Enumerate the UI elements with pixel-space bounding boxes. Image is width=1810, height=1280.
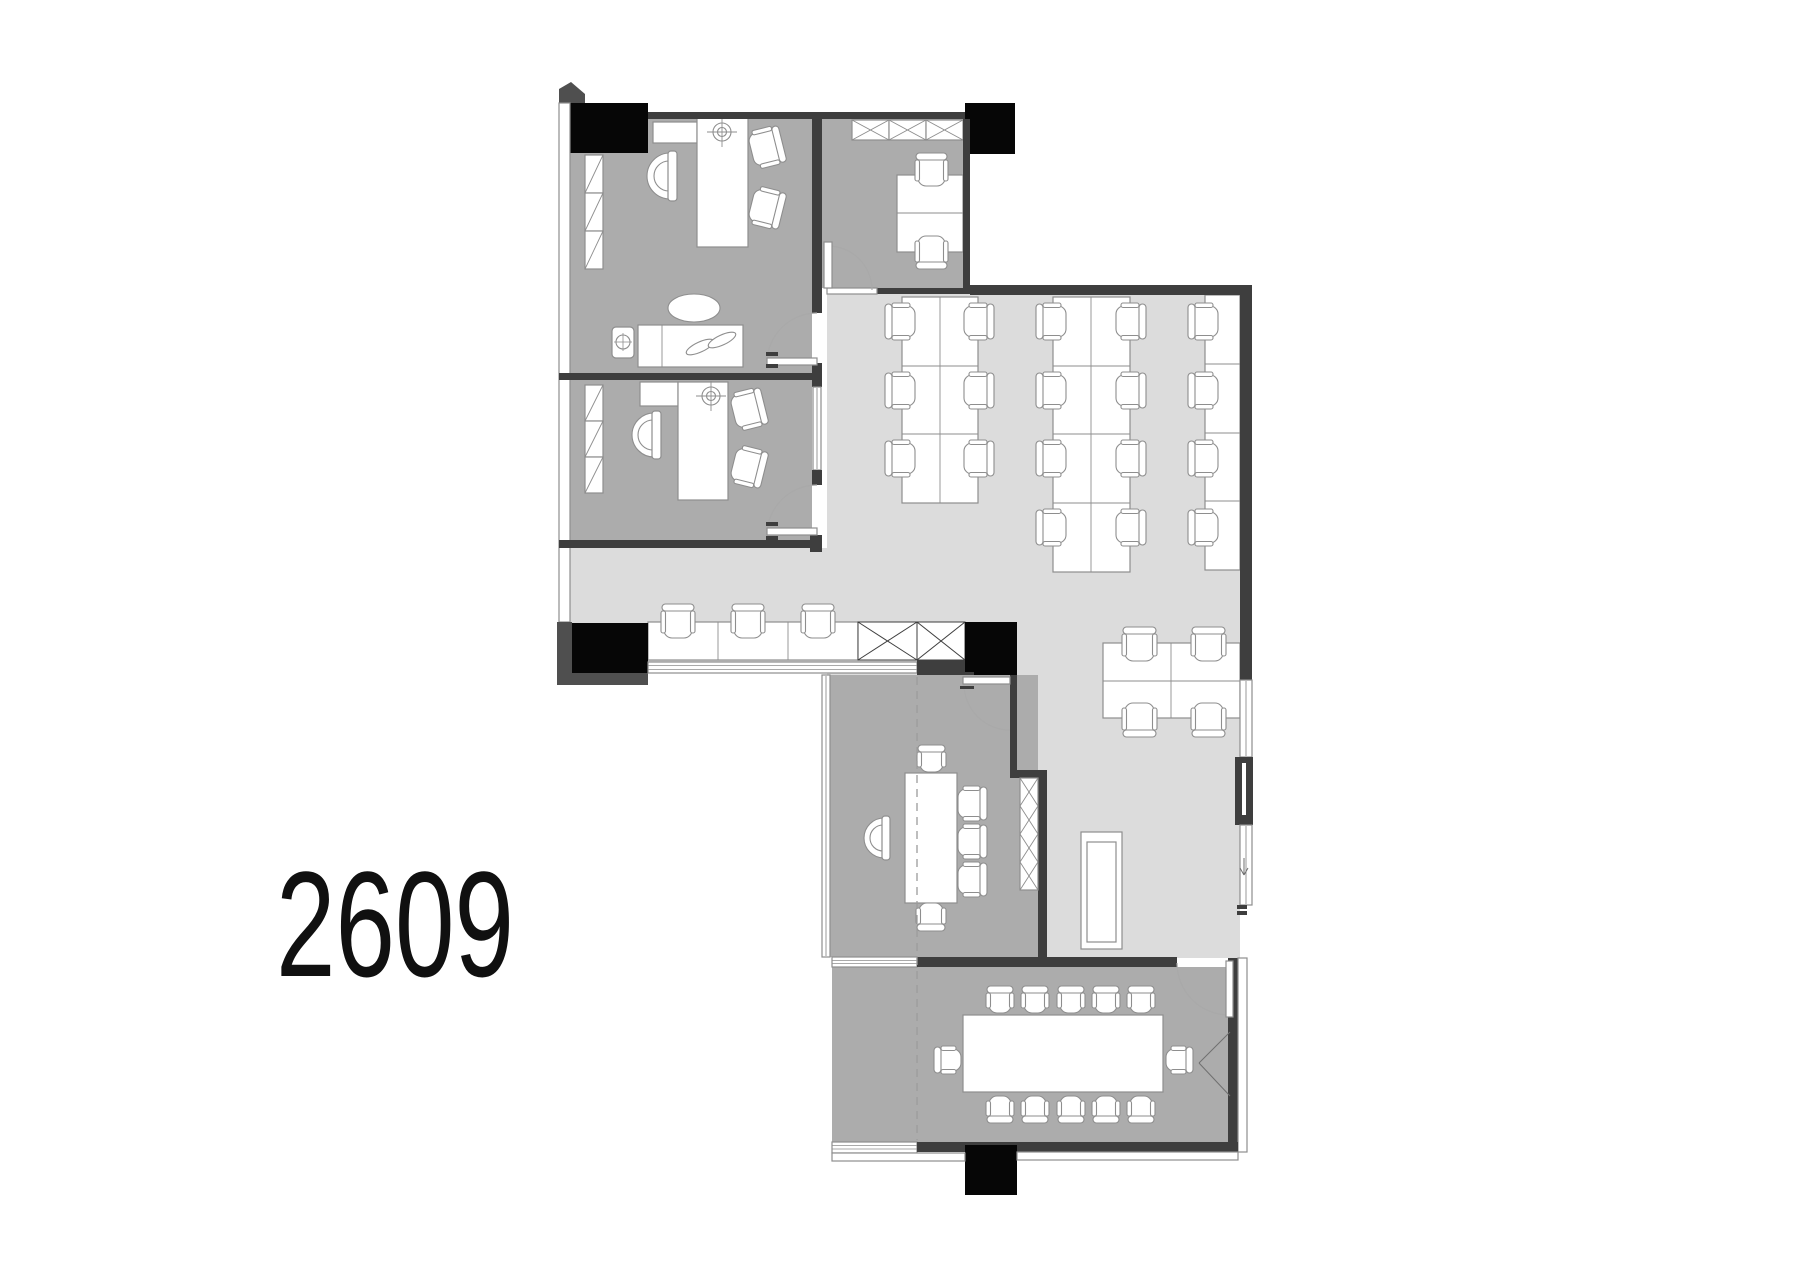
chair-part bbox=[1081, 993, 1086, 1008]
office-chair bbox=[731, 604, 765, 638]
chair-part bbox=[1022, 1116, 1048, 1123]
door-jamb-mark bbox=[1237, 911, 1247, 915]
office-chair bbox=[1116, 372, 1146, 409]
chair-part bbox=[1036, 510, 1043, 545]
chair-part bbox=[1043, 405, 1061, 410]
chair-part bbox=[885, 441, 892, 476]
wall-office1-east bbox=[812, 293, 822, 313]
office-chair bbox=[1116, 303, 1146, 340]
chair-part bbox=[1188, 304, 1195, 339]
chair-part bbox=[1125, 630, 1154, 661]
chair-part bbox=[986, 1101, 991, 1116]
chair-part bbox=[980, 787, 987, 820]
floor-plan-page: 2609 bbox=[0, 0, 1810, 1280]
chair-part bbox=[969, 372, 987, 377]
office-chair bbox=[1122, 627, 1157, 661]
chair-part bbox=[1123, 627, 1156, 634]
chair-part bbox=[1092, 993, 1097, 1008]
chair-part bbox=[1186, 1047, 1193, 1073]
chair-part bbox=[987, 986, 1013, 993]
meeting-table bbox=[905, 773, 957, 903]
chair-part bbox=[1121, 336, 1139, 341]
chair-part bbox=[980, 825, 987, 858]
chair-part bbox=[1043, 542, 1061, 547]
chair-part bbox=[942, 752, 947, 767]
conference-chair bbox=[1021, 986, 1049, 1013]
chair-part bbox=[1045, 993, 1050, 1008]
window-band-south bbox=[648, 662, 917, 673]
wall-meeting-east-a bbox=[1010, 685, 1017, 770]
chair-part bbox=[1222, 634, 1227, 656]
column-block-sw bbox=[572, 623, 648, 673]
chair-part bbox=[1139, 510, 1146, 545]
chair-part bbox=[1036, 304, 1043, 339]
chair-part bbox=[1171, 1046, 1186, 1051]
chair-part bbox=[1021, 1101, 1026, 1116]
chair-part bbox=[1127, 1101, 1132, 1116]
chair-part bbox=[1022, 986, 1048, 993]
chair-part bbox=[916, 262, 947, 269]
chair-part bbox=[1195, 372, 1213, 377]
chair-part bbox=[941, 1046, 956, 1051]
chair-part bbox=[885, 304, 892, 339]
chair-part bbox=[963, 855, 980, 860]
chair-part bbox=[664, 607, 692, 638]
chair-part bbox=[1021, 993, 1026, 1008]
chair-part bbox=[1194, 630, 1223, 661]
wall-meeting-jog bbox=[1010, 770, 1047, 778]
office-chair bbox=[958, 786, 987, 821]
chair-part bbox=[1092, 1101, 1097, 1116]
chair-part bbox=[1194, 703, 1223, 734]
chair-part bbox=[1043, 336, 1061, 341]
floor-plan: 2609 bbox=[0, 0, 1810, 1280]
chair-part bbox=[1192, 627, 1225, 634]
chair-part bbox=[1121, 509, 1139, 514]
chair-part bbox=[969, 440, 987, 445]
chair-part bbox=[944, 160, 949, 181]
open-office-floor bbox=[827, 293, 1240, 675]
chair-part bbox=[761, 611, 766, 633]
chair-part bbox=[963, 824, 980, 829]
chair-part bbox=[1222, 708, 1227, 730]
chair-part bbox=[1043, 440, 1061, 445]
chair-part bbox=[963, 817, 980, 822]
wall-cabinet bbox=[653, 122, 697, 143]
chair-part bbox=[915, 160, 920, 181]
door-jamb bbox=[1010, 675, 1017, 685]
chair-part bbox=[916, 153, 947, 160]
wall-small-office-south bbox=[877, 288, 970, 294]
office-chair bbox=[885, 372, 915, 409]
office-chair bbox=[1116, 440, 1146, 477]
door-jamb-mark bbox=[1237, 905, 1247, 909]
wall-office1-south bbox=[559, 373, 822, 380]
chair-part bbox=[1191, 634, 1196, 656]
conference-chair bbox=[1092, 1096, 1120, 1123]
office-chair bbox=[801, 604, 835, 638]
door-leaf bbox=[824, 242, 832, 288]
office-chair bbox=[964, 303, 994, 340]
wall-south-foot bbox=[557, 673, 648, 685]
chair-part bbox=[1153, 634, 1158, 656]
chair-part bbox=[1093, 986, 1119, 993]
chair-part bbox=[1121, 440, 1139, 445]
conference-chair bbox=[1021, 1096, 1049, 1123]
conference-chair bbox=[1092, 986, 1120, 1013]
chair-part bbox=[969, 473, 987, 478]
chair-part bbox=[963, 862, 980, 867]
office-chair bbox=[964, 440, 994, 477]
chair-part bbox=[1057, 993, 1062, 1008]
door-leaf bbox=[767, 528, 817, 535]
conference-chair bbox=[986, 986, 1014, 1013]
door-leaf bbox=[963, 677, 1010, 684]
chair-part bbox=[1093, 1116, 1119, 1123]
chair-part bbox=[1188, 441, 1195, 476]
office-chair bbox=[1036, 372, 1066, 409]
chair-part bbox=[892, 372, 910, 377]
chair-part bbox=[691, 611, 696, 633]
chair-part bbox=[980, 863, 987, 896]
chair-part bbox=[1139, 441, 1146, 476]
chair-part bbox=[963, 893, 980, 898]
window-band-meeting-south bbox=[832, 957, 917, 967]
chair-part bbox=[1151, 1101, 1156, 1116]
chair-part bbox=[1151, 993, 1156, 1008]
chair-part bbox=[987, 441, 994, 476]
office-chair bbox=[661, 604, 695, 638]
door-threshold bbox=[827, 288, 877, 294]
chair-part bbox=[1058, 986, 1084, 993]
conference-chair bbox=[1057, 1096, 1085, 1123]
oval-table bbox=[668, 294, 720, 322]
chair-part bbox=[969, 336, 987, 341]
chair-part bbox=[1043, 473, 1061, 478]
wall-top bbox=[648, 112, 1015, 119]
chair-part bbox=[969, 303, 987, 308]
chair-part bbox=[934, 1047, 941, 1073]
office-chair bbox=[1188, 509, 1218, 546]
wall-stub bbox=[812, 470, 822, 485]
chair-part bbox=[892, 473, 910, 478]
chair-part bbox=[1043, 303, 1061, 308]
chair-part bbox=[1043, 509, 1061, 514]
conference-chair bbox=[1166, 1046, 1193, 1074]
chair-part bbox=[1010, 1101, 1015, 1116]
column-block-south bbox=[965, 1145, 1017, 1195]
chair-part bbox=[941, 1070, 956, 1075]
door-leaf bbox=[1226, 961, 1233, 1017]
office-chair bbox=[1122, 703, 1157, 737]
wall-slot bbox=[1242, 763, 1246, 815]
chair-part bbox=[802, 604, 834, 611]
chair-part bbox=[1195, 405, 1213, 410]
chair-part bbox=[1045, 1101, 1050, 1116]
office-chair bbox=[885, 303, 915, 340]
chair-part bbox=[1043, 372, 1061, 377]
chair-part bbox=[1171, 1070, 1186, 1075]
office-chair bbox=[1191, 627, 1226, 661]
column-block-ne bbox=[965, 103, 1015, 154]
chair-part bbox=[917, 924, 945, 931]
office-chair bbox=[958, 824, 987, 859]
conference-chair bbox=[1127, 1096, 1155, 1123]
chair-part bbox=[1116, 993, 1121, 1008]
chair-part bbox=[986, 993, 991, 1008]
chair-part bbox=[1195, 336, 1213, 341]
chair-part bbox=[1195, 303, 1213, 308]
chair-part bbox=[1010, 993, 1015, 1008]
wall-meeting-east-b bbox=[1038, 778, 1047, 958]
chair-part bbox=[987, 1116, 1013, 1123]
wall-east-upper bbox=[1240, 285, 1252, 680]
conference-table bbox=[963, 1015, 1163, 1092]
wall-conference-east-face bbox=[1238, 958, 1247, 1152]
chair-part bbox=[732, 604, 764, 611]
chair-part bbox=[661, 611, 666, 633]
chair-part bbox=[1188, 510, 1195, 545]
office-chair bbox=[1036, 509, 1066, 546]
chair-part bbox=[1191, 708, 1196, 730]
chair-part bbox=[1116, 1101, 1121, 1116]
sill-south-left bbox=[832, 1153, 965, 1161]
chair-part bbox=[1195, 440, 1213, 445]
chair-part bbox=[987, 304, 994, 339]
conference-chair bbox=[934, 1046, 961, 1074]
chair-part bbox=[801, 611, 806, 633]
chair-part bbox=[1153, 708, 1158, 730]
chair-part bbox=[1125, 703, 1154, 734]
chair-part bbox=[1122, 634, 1127, 656]
chair-part bbox=[987, 373, 994, 408]
chair-part bbox=[944, 241, 949, 262]
conference-chair bbox=[1127, 986, 1155, 1013]
chair-part bbox=[1128, 986, 1154, 993]
chair-part bbox=[804, 607, 832, 638]
chair-part bbox=[885, 373, 892, 408]
chair-part bbox=[1195, 473, 1213, 478]
door-leaf bbox=[767, 358, 817, 365]
conference-chair bbox=[1057, 986, 1085, 1013]
chair-part bbox=[1057, 1101, 1062, 1116]
door-jamb-mark bbox=[766, 522, 778, 526]
office-chair bbox=[1116, 509, 1146, 546]
office-chair bbox=[1188, 372, 1218, 409]
plan-shapes bbox=[557, 82, 1253, 1195]
chair-part bbox=[1121, 372, 1139, 377]
office-chair bbox=[1036, 440, 1066, 477]
chair-part bbox=[1121, 473, 1139, 478]
door-jamb-mark bbox=[766, 364, 778, 368]
column-block-nw bbox=[570, 103, 648, 153]
chair-part bbox=[892, 440, 910, 445]
chair-part bbox=[1195, 542, 1213, 547]
chair-part bbox=[1123, 730, 1156, 737]
office-chair bbox=[915, 153, 948, 186]
chair-part bbox=[1127, 993, 1132, 1008]
chair-part bbox=[917, 752, 922, 767]
chair-part bbox=[1121, 405, 1139, 410]
tall-cabinet-hatch bbox=[1020, 778, 1038, 890]
chair-part bbox=[662, 604, 694, 611]
wall-notch bbox=[559, 82, 585, 103]
office-chair bbox=[916, 903, 946, 931]
unit-number-label: 2609 bbox=[276, 840, 514, 1008]
office-chair bbox=[915, 236, 948, 269]
door-jamb-mark bbox=[960, 686, 974, 689]
door-jamb-mark bbox=[960, 672, 974, 675]
wall-office2-south bbox=[559, 540, 822, 548]
office-chair bbox=[958, 862, 987, 897]
chair-part bbox=[892, 336, 910, 341]
office-chair bbox=[917, 745, 946, 772]
wall-open-top bbox=[970, 285, 1252, 295]
window-band-conference-sw bbox=[832, 1142, 917, 1153]
task-chair-seat bbox=[652, 411, 661, 459]
office-chair bbox=[1036, 303, 1066, 340]
chair-part bbox=[1036, 373, 1043, 408]
wall-small-office-east bbox=[963, 119, 970, 293]
chair-part bbox=[942, 908, 947, 924]
chair-part bbox=[1121, 542, 1139, 547]
daybed bbox=[638, 325, 743, 367]
conference-chair bbox=[986, 1096, 1014, 1123]
wall-cabinet bbox=[640, 382, 678, 406]
chair-part bbox=[892, 303, 910, 308]
chair-part bbox=[918, 745, 945, 752]
task-chair-seat bbox=[882, 816, 890, 860]
chair-part bbox=[1192, 730, 1225, 737]
wall-stub bbox=[917, 660, 965, 675]
office-chair bbox=[1188, 440, 1218, 477]
office-chair bbox=[964, 372, 994, 409]
chair-part bbox=[1195, 509, 1213, 514]
chair-part bbox=[1036, 441, 1043, 476]
chair-part bbox=[892, 405, 910, 410]
chair-part bbox=[969, 405, 987, 410]
chair-part bbox=[1139, 373, 1146, 408]
chair-part bbox=[1128, 1116, 1154, 1123]
chair-part bbox=[1122, 708, 1127, 730]
chair-part bbox=[1058, 1116, 1084, 1123]
chair-part bbox=[1121, 303, 1139, 308]
wall-conference-north bbox=[917, 957, 1177, 967]
door-jamb-mark bbox=[766, 352, 778, 356]
chair-part bbox=[734, 607, 762, 638]
office-chair bbox=[885, 440, 915, 477]
chair-part bbox=[963, 786, 980, 791]
sill-south-right bbox=[1017, 1152, 1238, 1160]
chair-part bbox=[1188, 373, 1195, 408]
door-jamb-mark bbox=[766, 536, 778, 540]
office-chair bbox=[1188, 303, 1218, 340]
office-chair bbox=[1191, 703, 1226, 737]
chair-part bbox=[1139, 304, 1146, 339]
chair-part bbox=[831, 611, 836, 633]
chair-part bbox=[1081, 1101, 1086, 1116]
chair-part bbox=[915, 241, 920, 262]
column-block-center bbox=[965, 622, 1017, 675]
chair-part bbox=[731, 611, 736, 633]
task-chair-seat bbox=[668, 151, 677, 201]
wall-office-divider bbox=[812, 112, 822, 293]
